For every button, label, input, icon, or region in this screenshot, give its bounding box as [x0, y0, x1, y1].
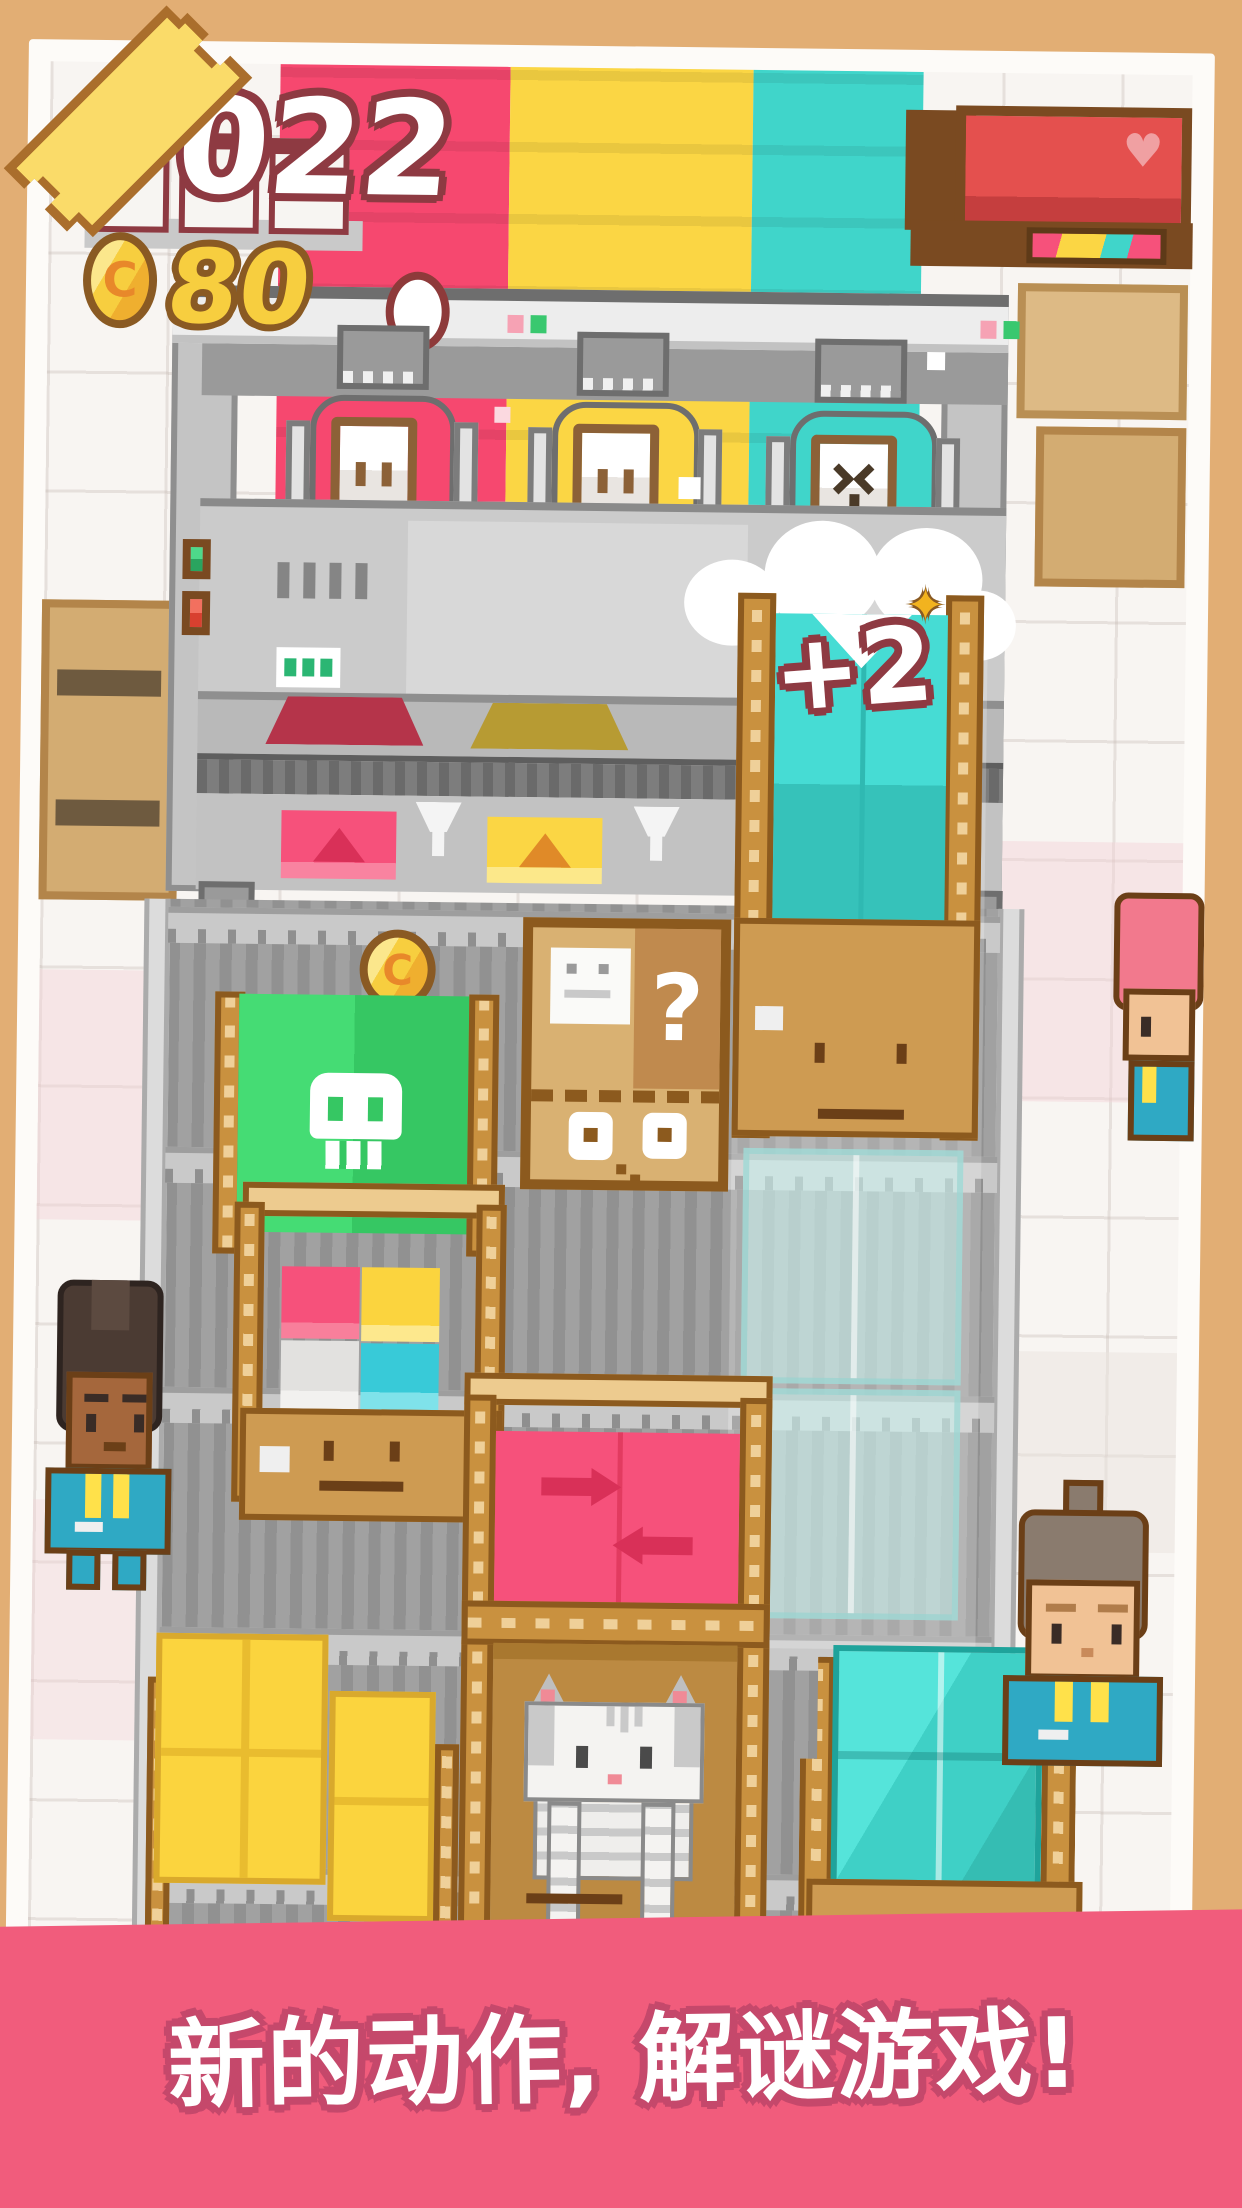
funnel-stem	[432, 830, 444, 856]
robot-arm	[527, 427, 552, 513]
worker-body	[44, 1467, 171, 1555]
robot-arm	[697, 429, 722, 515]
crate-face[interactable]	[732, 918, 981, 1139]
yellow-box[interactable]	[153, 1633, 328, 1885]
mound-olive	[470, 702, 629, 750]
light-pink	[980, 321, 996, 339]
cat-paw	[546, 1801, 582, 1933]
background-crate	[1034, 426, 1186, 588]
shelf-slot	[55, 799, 159, 826]
shelf-slot	[57, 669, 161, 696]
shipping-label	[550, 947, 631, 1024]
side-shelf	[38, 599, 180, 901]
crate-shelf	[461, 1600, 770, 1648]
rainbow-item	[1026, 227, 1166, 265]
speck	[494, 407, 510, 423]
coin-counter: 80	[161, 237, 317, 341]
light-green	[1003, 321, 1019, 339]
mystery-box[interactable]: ?	[520, 917, 731, 1192]
speck	[678, 477, 700, 499]
caption-text: 新的动作, 解谜游戏!	[167, 1974, 1082, 2128]
worker-pink-hair	[1111, 892, 1204, 1163]
worker-face	[1025, 1579, 1140, 1680]
crate-flap	[243, 1182, 505, 1219]
app-store-screenshot: ♥	[0, 0, 1242, 2208]
mound-dark-red	[265, 696, 424, 746]
green-button[interactable]	[182, 539, 210, 579]
worker-left	[44, 1279, 174, 1591]
worker-body	[1002, 1675, 1163, 1767]
robot-bracket	[815, 339, 908, 404]
crate-flap	[464, 1372, 772, 1408]
crate-post	[734, 1398, 773, 1943]
light-pink	[507, 315, 523, 333]
question-mark: ?	[650, 963, 704, 1056]
dispenser-pink[interactable]	[281, 810, 397, 879]
robot-arm	[285, 420, 310, 506]
recycle-box[interactable]	[494, 1431, 740, 1606]
skull-icon	[310, 1073, 403, 1140]
background-crate	[1016, 283, 1188, 420]
light-green	[530, 315, 546, 333]
speck	[927, 352, 945, 370]
surprised-eye	[853, 464, 884, 495]
robot-arm	[453, 422, 478, 508]
tape-line	[531, 1089, 719, 1103]
robot-bracket	[577, 332, 670, 397]
ghost-box	[741, 1148, 964, 1386]
dispenser-yellow[interactable]	[487, 817, 603, 884]
surprised-eye	[823, 463, 854, 494]
led-panel	[276, 647, 340, 688]
skull-jaw	[325, 1141, 385, 1170]
robot-bracket	[337, 325, 430, 390]
heart-icon: ♥	[1121, 127, 1163, 229]
caption-banner: 新的动作, 解谜游戏!	[0, 1909, 1242, 2208]
screenshot-card: ♥	[1, 39, 1215, 2208]
red-button[interactable]	[182, 591, 211, 635]
cat-paw	[640, 1803, 676, 1935]
yellow-box[interactable]	[327, 1691, 436, 1922]
four-square-box[interactable]	[280, 1266, 440, 1414]
sparkle-icon: ✦	[906, 578, 945, 632]
worker-face	[66, 1372, 153, 1471]
recycle-arrows-icon	[591, 1468, 621, 1506]
crate-mouth	[526, 1893, 622, 1904]
cat-head	[523, 1701, 704, 1803]
worker-right	[1002, 1479, 1166, 1776]
funnel-stem	[650, 835, 662, 861]
